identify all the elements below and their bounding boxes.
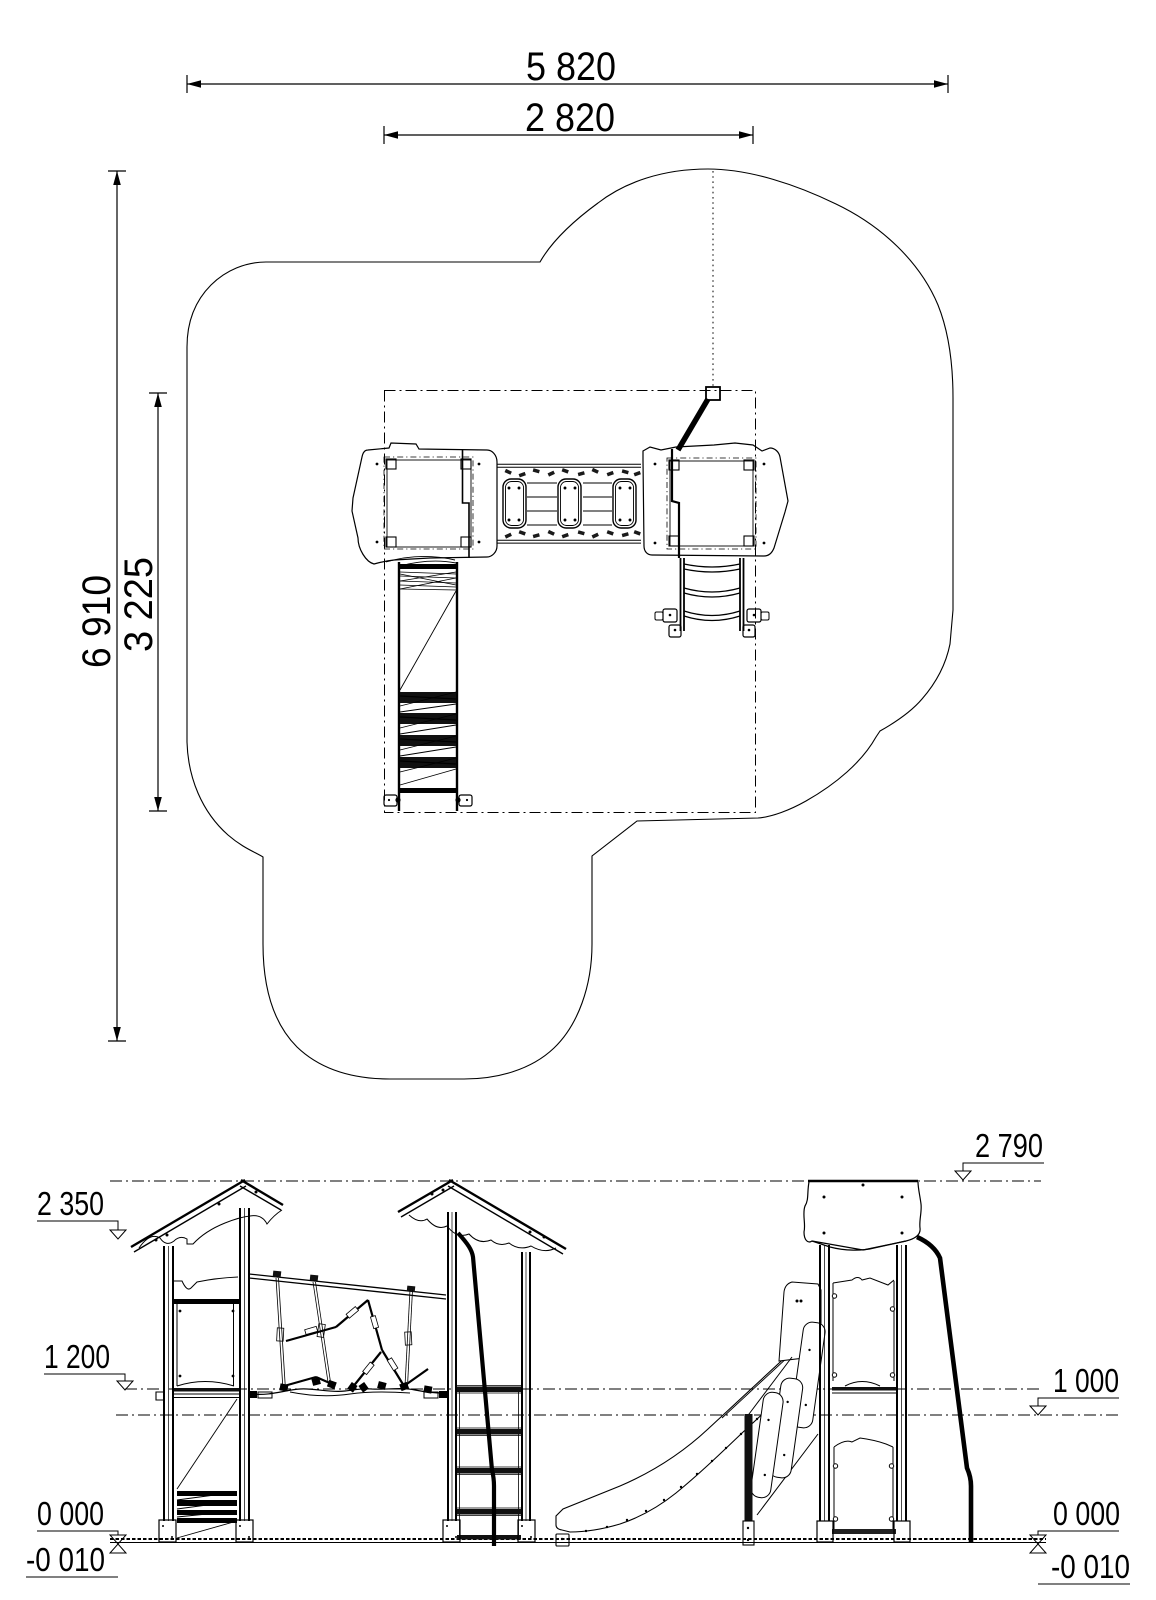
svg-text:-0 010: -0 010 <box>26 1541 105 1578</box>
svg-text:5 820: 5 820 <box>526 45 616 89</box>
svg-text:1 200: 1 200 <box>44 1338 110 1375</box>
svg-text:3 225: 3 225 <box>117 557 161 652</box>
svg-text:2 350: 2 350 <box>37 1185 104 1222</box>
svg-text:-0 010: -0 010 <box>1051 1548 1130 1585</box>
svg-text:0 000: 0 000 <box>1053 1495 1120 1532</box>
svg-text:1 000: 1 000 <box>1053 1362 1119 1399</box>
svg-text:2 820: 2 820 <box>525 96 615 140</box>
svg-text:0 000: 0 000 <box>37 1495 104 1532</box>
svg-text:6 910: 6 910 <box>75 575 119 668</box>
svg-text:2 790: 2 790 <box>975 1127 1043 1164</box>
